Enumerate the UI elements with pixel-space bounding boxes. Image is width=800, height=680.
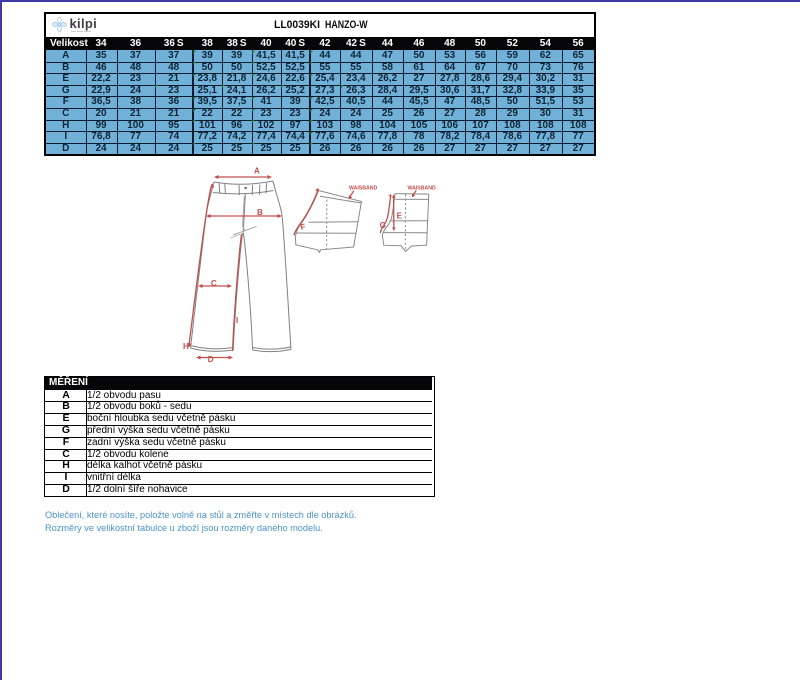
svg-text:G: G — [380, 221, 386, 230]
svg-text:F: F — [300, 222, 307, 232]
svg-text:I: I — [236, 316, 238, 325]
svg-text:B: B — [257, 208, 263, 217]
svg-text:A: A — [254, 167, 260, 176]
svg-text:C: C — [211, 279, 217, 288]
svg-text:WAISBAND: WAISBAND — [408, 186, 436, 192]
svg-text:H: H — [183, 342, 189, 351]
svg-text:WAISBAND: WAISBAND — [349, 186, 377, 192]
svg-text:D: D — [208, 355, 214, 364]
svg-text:E: E — [397, 211, 403, 220]
